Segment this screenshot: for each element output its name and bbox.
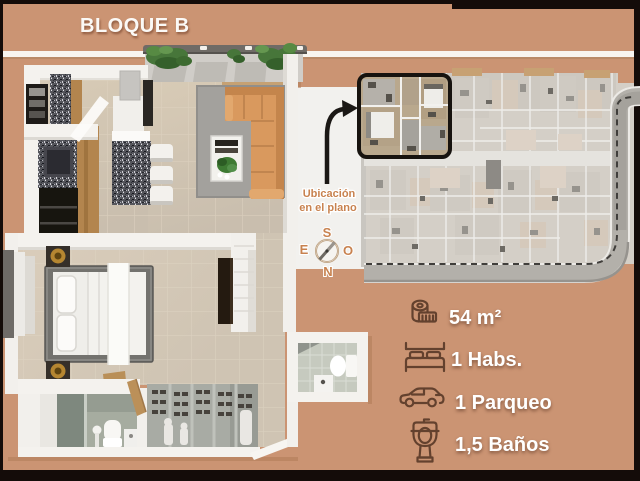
svg-text:N: N <box>323 264 332 279</box>
svg-text:1,5 Baños: 1,5 Baños <box>455 434 549 456</box>
svg-text:O: O <box>343 243 353 258</box>
svg-text:Ubicación: Ubicación <box>303 188 356 200</box>
svg-text:1 Habs.: 1 Habs. <box>451 349 522 371</box>
svg-text:E: E <box>300 242 309 257</box>
svg-text:S: S <box>323 225 332 240</box>
svg-text:BLOQUE B: BLOQUE B <box>80 15 190 37</box>
svg-text:54 m²: 54 m² <box>449 307 502 329</box>
svg-text:1 Parqueo: 1 Parqueo <box>455 392 552 414</box>
svg-text:en el plano: en el plano <box>299 202 357 214</box>
